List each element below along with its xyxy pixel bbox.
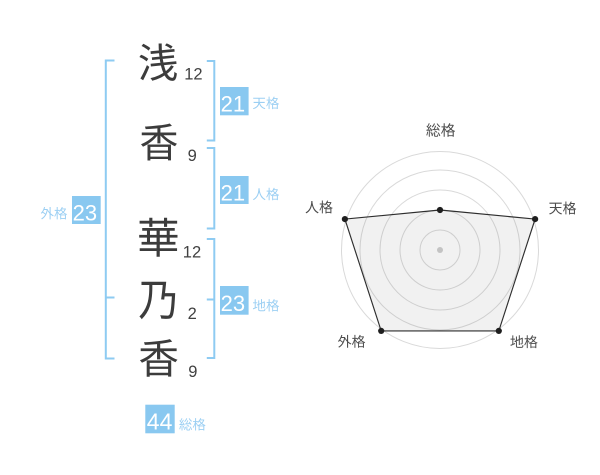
svg-text:23: 23: [73, 200, 97, 225]
svg-text:9: 9: [188, 147, 197, 165]
svg-text:21: 21: [221, 92, 245, 117]
svg-text:23: 23: [221, 291, 245, 316]
svg-text:9: 9: [188, 363, 197, 381]
svg-text:2: 2: [188, 305, 197, 323]
svg-text:21: 21: [221, 180, 245, 205]
svg-text:12: 12: [184, 65, 202, 83]
svg-text:44: 44: [147, 408, 173, 434]
svg-text:12: 12: [183, 244, 201, 262]
